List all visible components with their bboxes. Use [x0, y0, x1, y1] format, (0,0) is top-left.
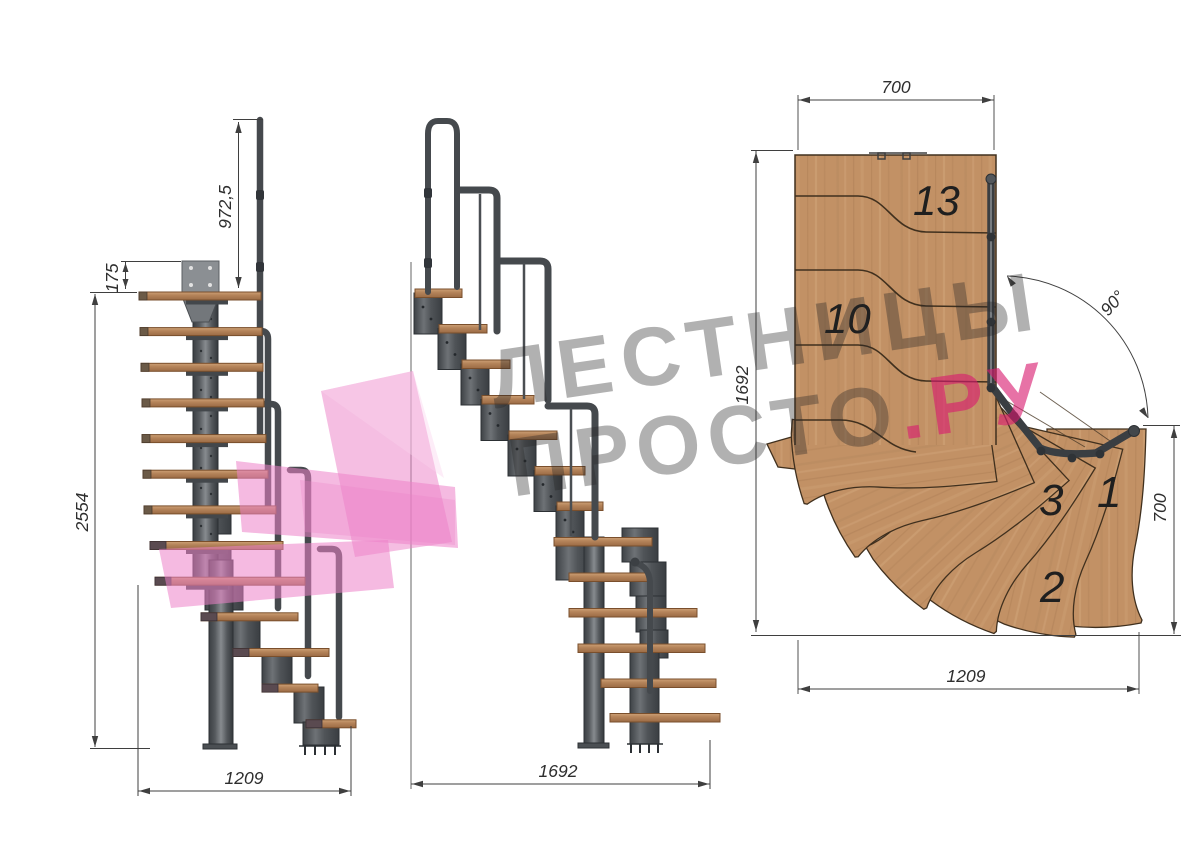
svg-text:3: 3 — [1039, 476, 1064, 525]
svg-text:1692: 1692 — [539, 761, 578, 781]
svg-text:1209: 1209 — [947, 666, 986, 686]
svg-text:700: 700 — [881, 77, 910, 97]
svg-text:1: 1 — [1097, 468, 1121, 517]
svg-text:2: 2 — [1039, 563, 1064, 612]
svg-text:13: 13 — [913, 177, 960, 224]
svg-text:1209: 1209 — [225, 768, 264, 788]
svg-text:175: 175 — [102, 263, 122, 292]
svg-text:972,5: 972,5 — [215, 185, 235, 229]
svg-text:700: 700 — [1150, 493, 1170, 522]
svg-text:2554: 2554 — [72, 492, 92, 532]
